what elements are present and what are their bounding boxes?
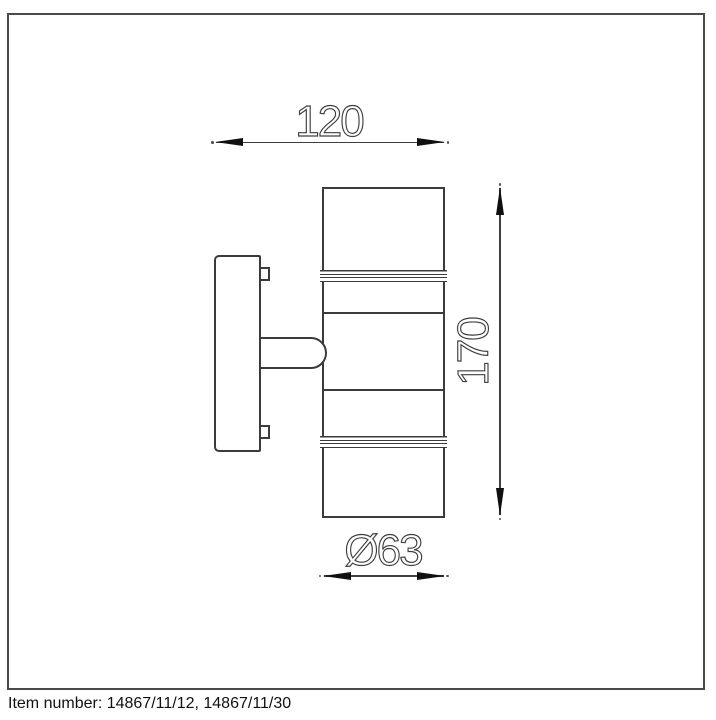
ring-groove-top (320, 270, 447, 282)
body-seam-upper (322, 312, 445, 314)
ring-groove-bottom (320, 436, 447, 448)
dimension-diameter-label: Ø63 (303, 529, 463, 573)
arrowhead-left (215, 138, 243, 146)
arrowhead-right (417, 138, 445, 146)
arrowhead-left (323, 572, 351, 580)
mounting-plate (214, 255, 261, 452)
arrowhead-down (496, 488, 504, 516)
dimension-line (499, 188, 501, 515)
arrowhead-up (496, 187, 504, 215)
drawing-canvas: 120 170 Ø63 Item number: 14867/11/12, 14… (0, 0, 716, 720)
dimension-width (215, 138, 445, 147)
dimension-height (496, 187, 505, 516)
wall-arm (259, 337, 327, 369)
dimension-diameter (323, 572, 445, 581)
arrowhead-right (417, 572, 445, 580)
lamp-body (322, 187, 445, 518)
item-number-text: Item number: 14867/11/12, 14867/11/30 (8, 695, 291, 713)
dimension-height-label: 170 (452, 272, 496, 432)
dimension-line (216, 142, 444, 144)
body-seam-lower (322, 389, 445, 391)
